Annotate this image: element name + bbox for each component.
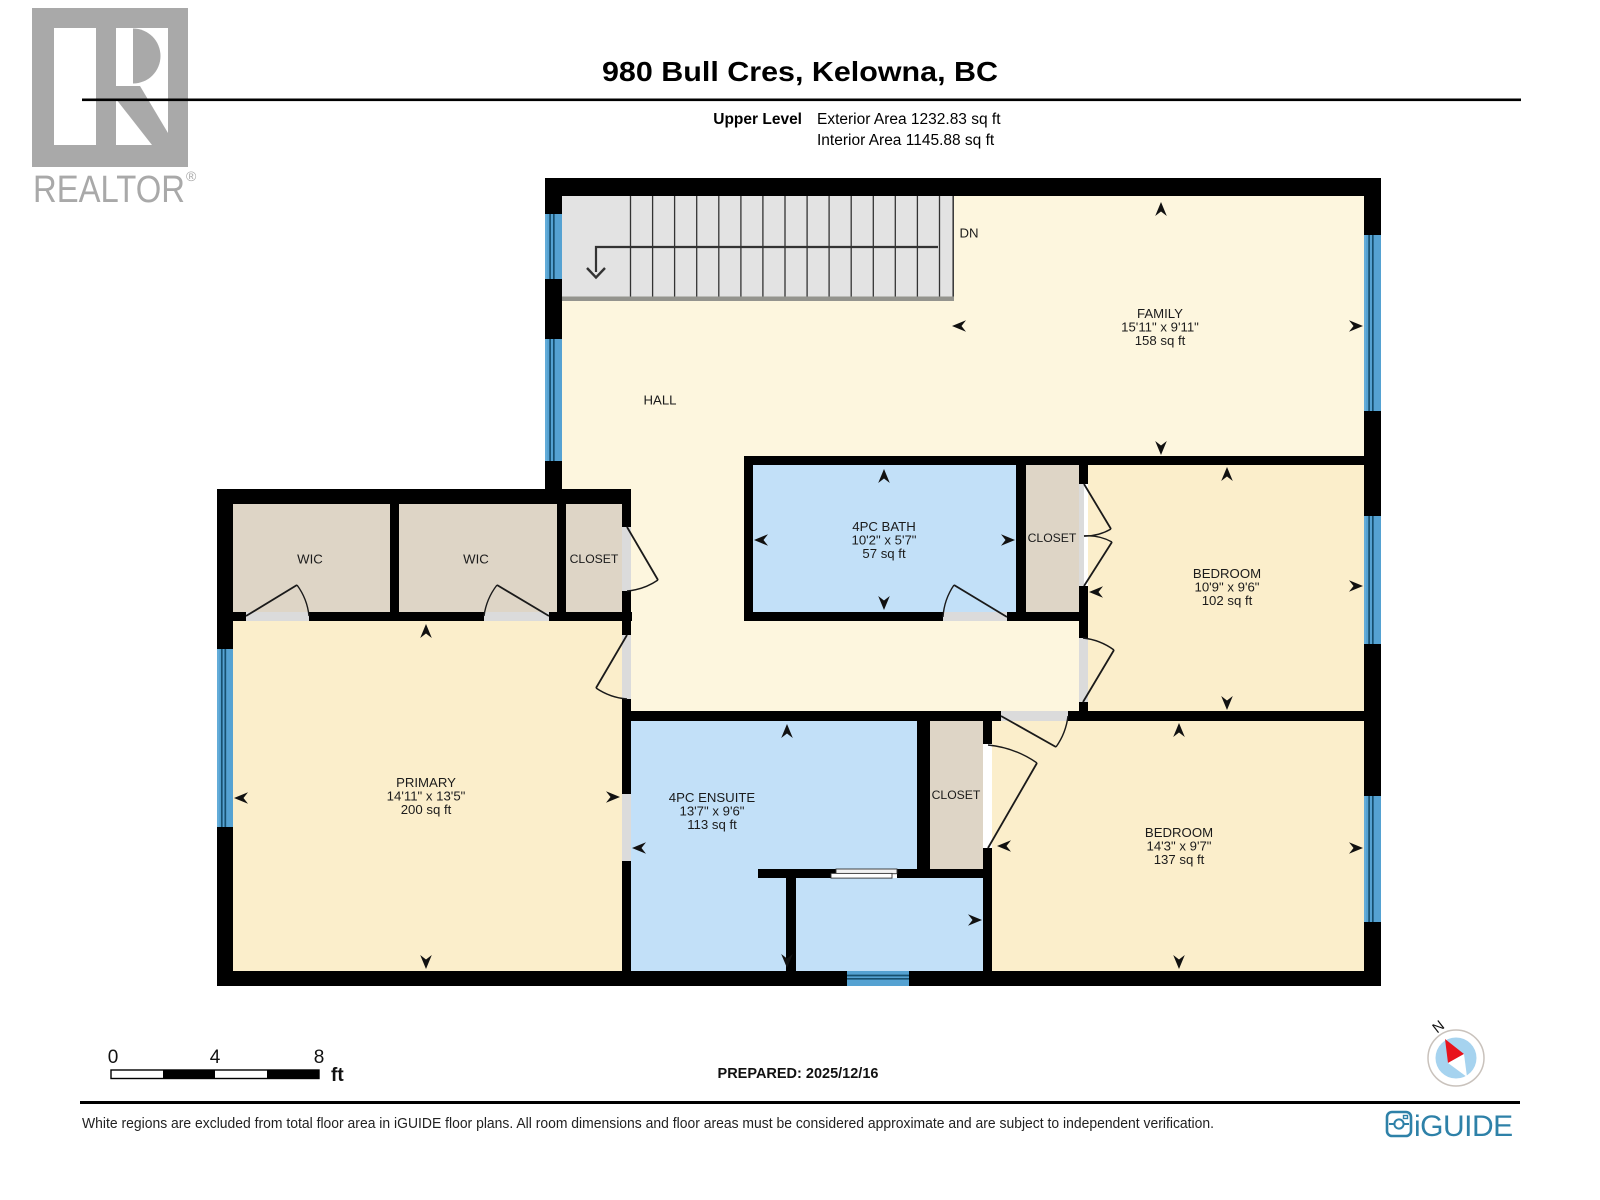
svg-text:980 Bull Cres, Kelowna, BC: 980 Bull Cres, Kelowna, BC: [602, 56, 998, 87]
svg-text:102 sq ft: 102 sq ft: [1202, 593, 1253, 608]
svg-text:iGUIDE: iGUIDE: [1414, 1110, 1513, 1143]
svg-text:White regions are excluded fro: White regions are excluded from total fl…: [82, 1115, 1214, 1132]
svg-text:WIC: WIC: [463, 552, 489, 567]
svg-text:4: 4: [210, 1047, 221, 1068]
svg-text:REALTOR: REALTOR: [33, 169, 185, 211]
svg-text:DN: DN: [959, 226, 978, 241]
svg-text:158 sq ft: 158 sq ft: [1135, 333, 1186, 348]
svg-text:113 sq ft: 113 sq ft: [687, 817, 737, 832]
svg-text:Upper Level: Upper Level: [713, 111, 802, 128]
svg-text:0: 0: [108, 1047, 119, 1068]
svg-text:8: 8: [314, 1047, 325, 1068]
svg-text:CLOSET: CLOSET: [1028, 531, 1077, 545]
svg-text:137 sq ft: 137 sq ft: [1154, 852, 1205, 867]
svg-text:Exterior Area 1232.83 sq ft: Exterior Area 1232.83 sq ft: [817, 111, 1001, 128]
svg-text:Interior Area 1145.88 sq ft: Interior Area 1145.88 sq ft: [817, 132, 995, 149]
svg-text:CLOSET: CLOSET: [932, 788, 981, 802]
svg-text:PREPARED: 2025/12/16: PREPARED: 2025/12/16: [718, 1066, 879, 1082]
svg-text:ft: ft: [331, 1065, 344, 1086]
svg-text:200 sq ft: 200 sq ft: [401, 802, 452, 817]
svg-text:57 sq ft: 57 sq ft: [862, 546, 906, 561]
svg-text:CLOSET: CLOSET: [570, 552, 619, 566]
svg-text:HALL: HALL: [644, 393, 677, 408]
svg-text:WIC: WIC: [297, 552, 323, 567]
svg-text:®: ®: [186, 168, 197, 184]
